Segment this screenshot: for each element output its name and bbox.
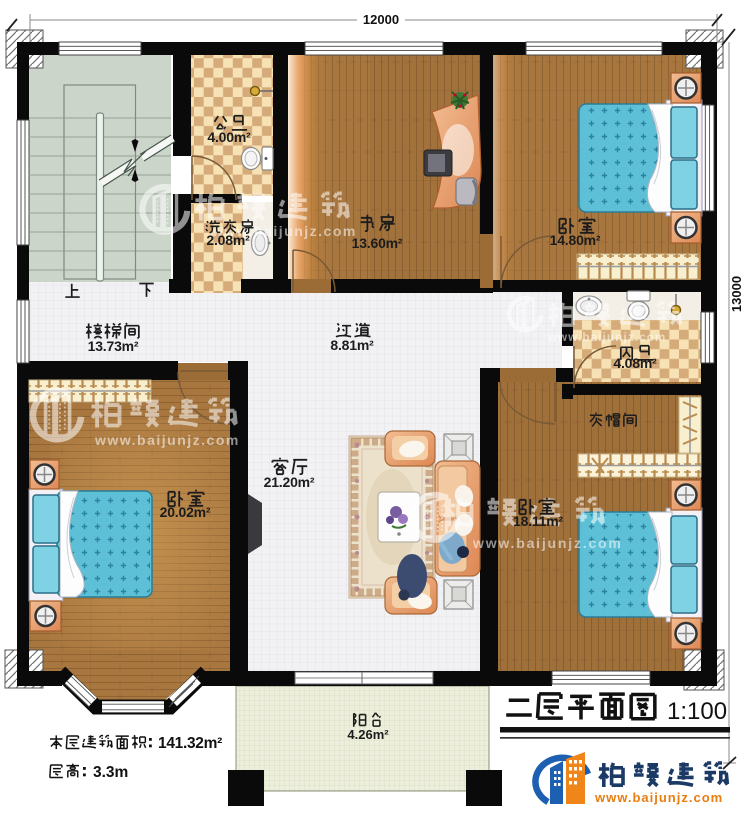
- svg-text:4.08m²: 4.08m²: [613, 355, 657, 371]
- svg-text:14.80m²: 14.80m²: [550, 232, 601, 248]
- svg-text:www.baijunjz.com: www.baijunjz.com: [94, 432, 240, 448]
- svg-text:12000: 12000: [363, 12, 399, 27]
- svg-text:13.73m²: 13.73m²: [88, 338, 139, 354]
- svg-text:141.32m²: 141.32m²: [158, 735, 222, 752]
- svg-text:4.26m²: 4.26m²: [347, 727, 389, 742]
- svg-text:3.3m: 3.3m: [93, 764, 128, 781]
- svg-text:www.baijunjz.com: www.baijunjz.com: [594, 790, 723, 805]
- svg-text:www.baijunjz.com: www.baijunjz.com: [472, 535, 623, 551]
- svg-text:21.20m²: 21.20m²: [264, 474, 315, 490]
- svg-text:13.60m²: 13.60m²: [352, 235, 403, 251]
- svg-text:1:100: 1:100: [667, 698, 727, 725]
- svg-text:4.00m²: 4.00m²: [207, 129, 251, 145]
- svg-text:8.81m²: 8.81m²: [330, 337, 374, 353]
- svg-text:www.baijunjz.com: www.baijunjz.com: [547, 332, 666, 344]
- svg-text:20.02m²: 20.02m²: [160, 504, 211, 520]
- svg-text:18.11m²: 18.11m²: [513, 513, 564, 529]
- svg-text:2.08m²: 2.08m²: [206, 232, 250, 248]
- svg-text:13000: 13000: [729, 276, 744, 312]
